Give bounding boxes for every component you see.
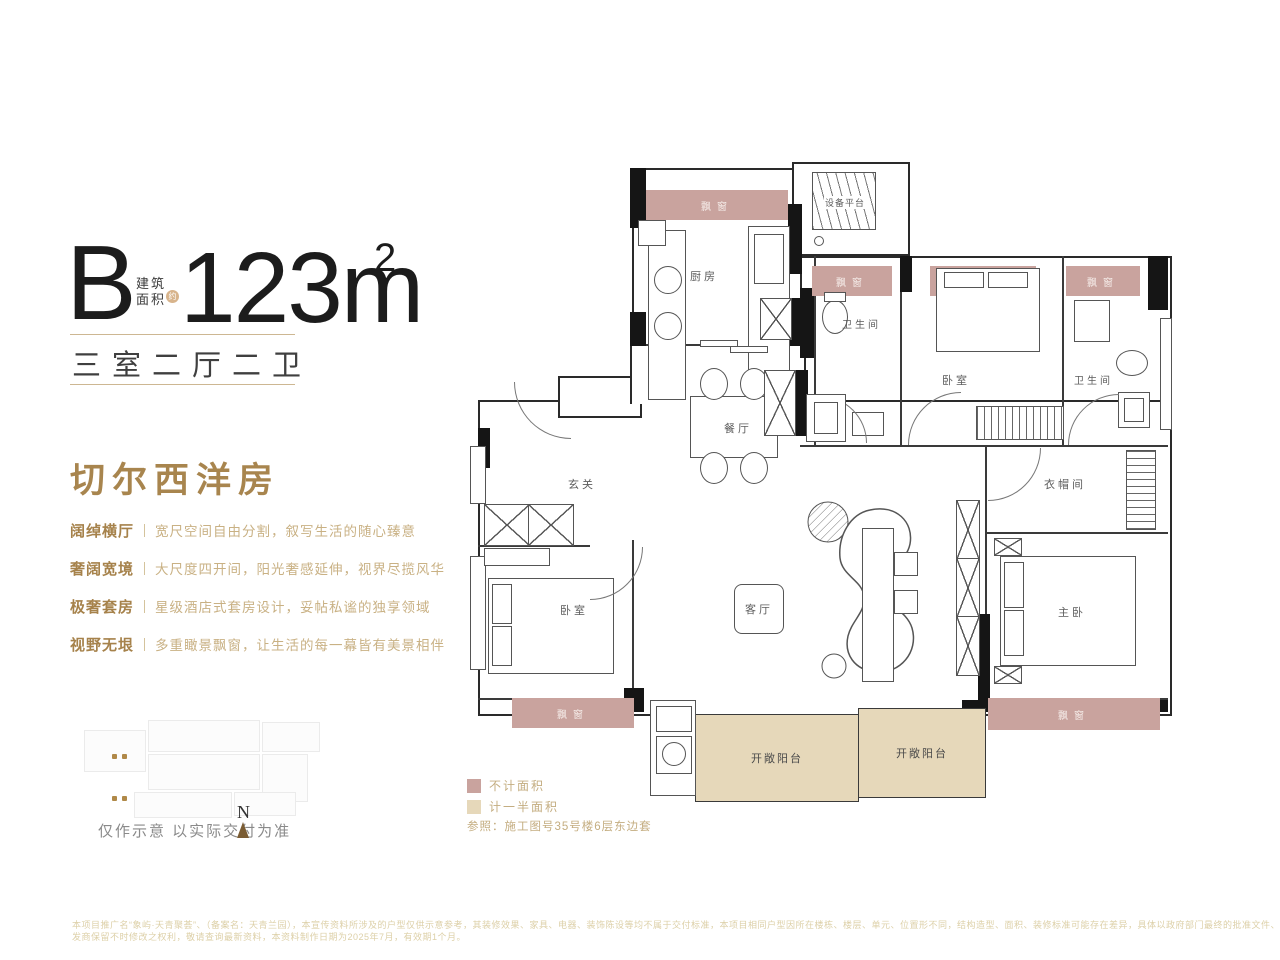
foyer-closet-xbox [484,504,530,546]
divider-top [70,334,295,335]
area-prefix-line1: 建筑 [136,276,166,292]
wall-segment [800,288,814,358]
legend-row-half-area: 计一半面积 [467,798,559,815]
area-prefix: 建筑 面积 [136,276,166,308]
shaft-xbox [764,370,796,436]
divider-bottom [70,384,295,385]
feature-desc: 宽尺空间自由分割，叙写生活的随心臻意 [155,520,416,540]
bay-window-label: 飘窗 [701,198,733,213]
shoe-cabinet [484,548,550,566]
side-table-icon [822,654,846,678]
shower-inner [1124,398,1144,422]
bay-window-band: 飘窗 [512,698,634,728]
floorplan-poster: B 建筑 面积 约 123m 2 三室二厅二卫 切尔西洋房 阔绰横厅 宽尺空间自… [0,0,1280,960]
feature-divider [144,562,145,575]
bay-window-label: 飘窗 [557,706,589,721]
feature-divider [144,638,145,651]
room-label-kitchen: 厨房 [690,268,718,284]
feature-row: 奢阔宽境 大尺度四开间，阳光奢感延伸，视界尽揽风华 [70,558,445,579]
north-indicator: N [237,802,250,823]
window [1160,318,1172,430]
interior-wall [800,445,1168,447]
feature-label: 奢阔宽境 [70,558,134,579]
north-arrow-icon [237,822,249,838]
balcony-label: 开敞阳台 [751,750,803,766]
toilet-tank [824,292,846,302]
feature-label: 视野无垠 [70,634,134,655]
window [470,446,486,504]
stove-burner-icon [654,266,682,294]
feature-label: 极奢套房 [70,596,134,617]
bay-window-band: 飘窗 [1066,266,1140,296]
equipment-dot [814,236,824,246]
washer-drum-icon [662,742,686,766]
window [470,556,486,670]
pillow [944,272,984,288]
toilet-icon [1116,350,1148,376]
legend-swatch-no-area [467,779,481,793]
feature-row: 极奢套房 星级酒店式套房设计，妥帖私谧的独享领域 [70,596,431,617]
stove-burner-icon [654,312,682,340]
balcony: 开敞阳台 [695,714,859,802]
chair [700,452,728,484]
balcony-label: 开敞阳台 [896,745,948,761]
shaft-xbox [994,666,1022,684]
feature-row: 阔绰横厅 宽尺空间自由分割，叙写生活的随心臻意 [70,520,416,541]
feature-divider [144,600,145,613]
feature-divider [144,524,145,537]
side-table [894,590,918,614]
wardrobe-hatch [1126,450,1156,530]
siteplan-note: 仅作示意 以实际交付为准 [98,820,291,841]
bath-sink [1074,300,1110,342]
legend-row-no-area: 不计面积 [467,777,545,794]
siteplan-highlight [122,754,127,759]
unit-type: B [66,230,137,336]
interior-wall [985,532,1168,534]
shaft-xbox [956,558,980,618]
pillow [492,626,512,666]
wall-segment [1148,256,1168,310]
chair [740,452,768,484]
siteplan-building [84,730,146,772]
laundry-sink [656,706,692,732]
tv-console [862,528,894,682]
side-table [894,552,918,576]
bay-window-band: 飘窗 [646,190,788,220]
siteplan-building [134,792,232,818]
kitchen-sink [754,234,784,284]
legend-label-no-area: 不计面积 [489,777,545,794]
feature-label: 阔绰横厅 [70,520,134,541]
shaft-xbox [760,298,792,340]
siteplan-building [148,720,260,752]
feature-desc: 大尺度四开间，阳光奢感延伸，视界尽揽风华 [155,558,445,578]
fridge [638,220,666,246]
sliding-door [730,346,768,353]
area-superscript: 2 [374,238,396,278]
siteplan-building [148,754,260,790]
balcony: 开敞阳台 [858,708,986,798]
room-label-cloakroom: 衣帽间 [1044,476,1086,492]
siteplan-highlight [112,754,117,759]
outline-patch [562,410,634,416]
wardrobe-hatch [976,406,1064,440]
room-label-equipment: 设备平台 [824,196,866,209]
room-label-living: 客厅 [745,601,773,617]
room-label-master: 主卧 [1056,604,1088,620]
wall-segment [630,168,646,228]
pillow [1004,562,1024,608]
approx-badge: 约 [166,290,179,303]
legend-swatch-half-area [467,800,481,814]
shaft-xbox [956,616,980,676]
room-label-dining: 餐厅 [722,420,754,436]
room-label-bedroom: 卧室 [560,602,588,618]
shaft-xbox [956,500,980,560]
sideboard-door [814,402,838,434]
pillow [1004,610,1024,656]
chair [700,368,728,400]
siteplan-highlight [112,796,117,801]
legend-label-half-area: 计一半面积 [489,798,559,815]
room-label-bath: 卫生间 [842,316,881,331]
siteplan-highlight [122,796,127,801]
wall-segment [630,312,646,346]
pillow [988,272,1028,288]
headline: 切尔西洋房 [70,452,280,503]
foyer-closet-xbox [528,504,574,546]
feature-desc: 星级酒店式套房设计，妥帖私谧的独享领域 [155,596,431,616]
pillow [492,584,512,624]
disclaimer-line2: 发商保留不时修改之权利，敬请查询最新资料，本资料制作日期为2025年7月，有效期… [72,932,466,943]
wall-segment [788,204,802,274]
feature-desc: 多重瞰景飘窗，让生活的每一幕皆有美景相伴 [155,634,445,654]
disclaimer-line1: 本项目推广名“象屿·天青聚荟”、（备案名：天青兰园），本宣传资料所涉及的户型仅供… [72,920,1280,931]
bay-window-label: 飘窗 [1058,707,1090,722]
wall-segment [900,256,912,292]
area-prefix-line2: 面积 [136,292,166,308]
shaft-xbox [994,538,1022,556]
room-label-bath: 卫生间 [1074,372,1113,387]
siteplan-building [262,722,320,752]
room-label-bedroom: 卧室 [942,372,970,388]
room-label-foyer: 玄关 [568,476,596,492]
living-label-box: 客厅 [734,584,784,634]
bay-window-band: 飘窗 [988,698,1160,730]
legend-reference: 参照：施工图号35号楼6层东边套 [467,818,652,834]
bay-window-label: 飘窗 [836,274,868,289]
siteplan-thumbnail [64,712,344,822]
feature-row: 视野无垠 多重瞰景飘窗，让生活的每一幕皆有美景相伴 [70,634,445,655]
rooms-summary: 三室二厅二卫 [72,342,312,384]
bay-window-label: 飘窗 [1087,274,1119,289]
